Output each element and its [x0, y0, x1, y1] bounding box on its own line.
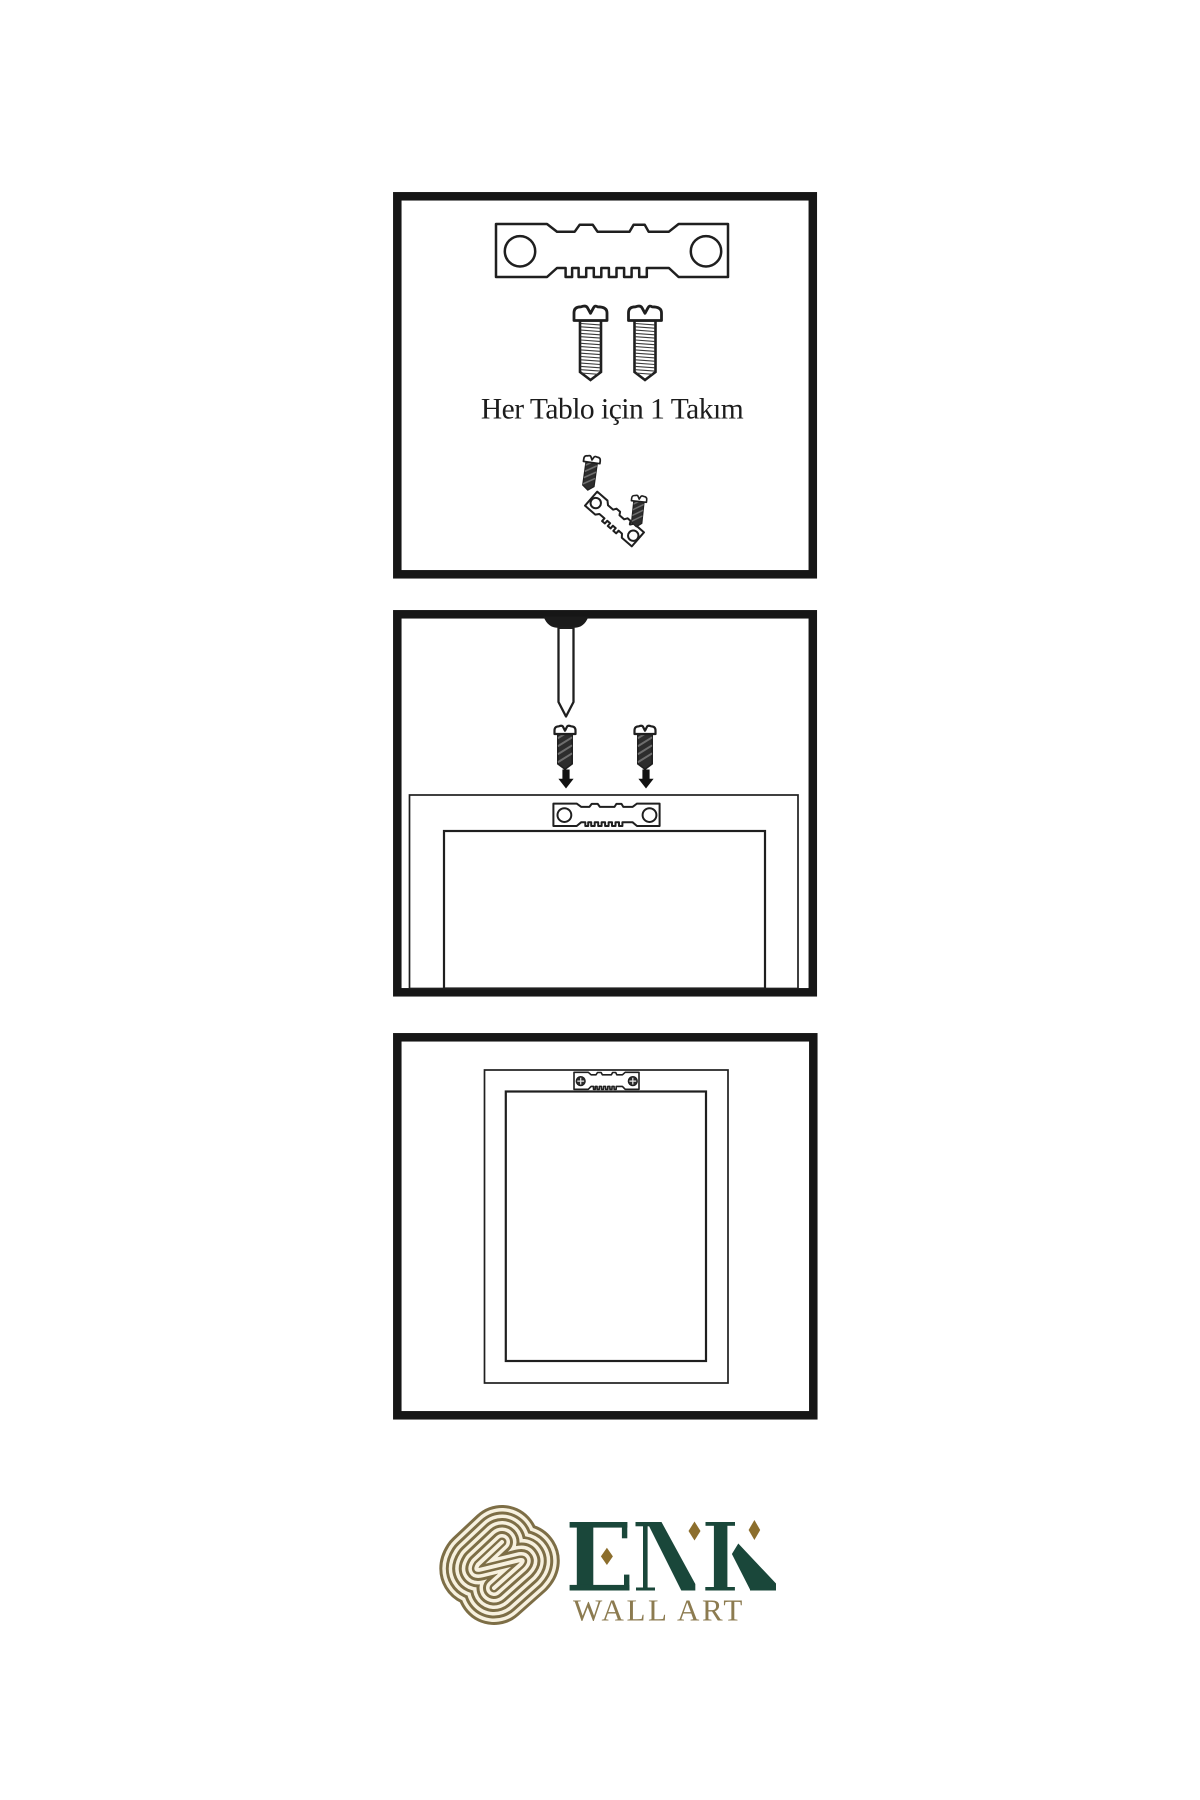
svg-text:Her Tablo için 1 Takım: Her Tablo için 1 Takım [481, 394, 744, 426]
svg-text:WALL ART: WALL ART [573, 1593, 745, 1628]
